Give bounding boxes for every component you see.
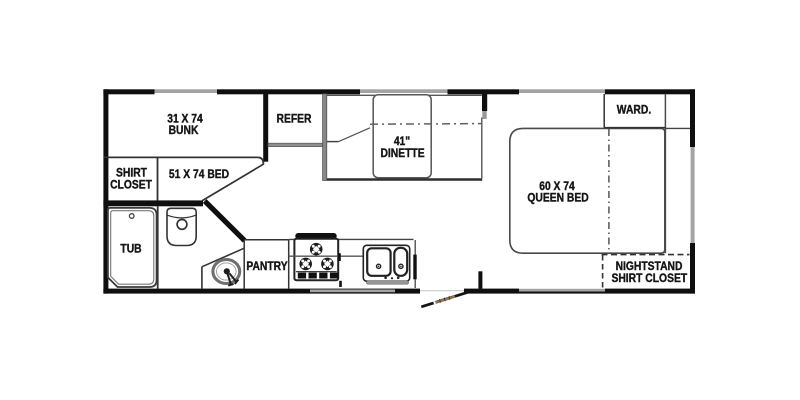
svg-text:51 X 74 BED: 51 X 74 BED (169, 169, 229, 182)
svg-text:DINETTE: DINETTE (380, 147, 425, 160)
svg-text:WARD.: WARD. (617, 104, 651, 117)
svg-text:CLOSET: CLOSET (110, 179, 152, 192)
svg-text:41": 41" (394, 135, 410, 148)
svg-text:QUEEN BED: QUEEN BED (527, 192, 588, 205)
svg-text:PANTRY: PANTRY (246, 260, 288, 273)
svg-text:SHIRT CLOSET: SHIRT CLOSET (611, 272, 687, 285)
svg-text:REFER: REFER (277, 113, 312, 126)
svg-text:TUB: TUB (120, 243, 141, 256)
svg-text:BUNK: BUNK (169, 125, 199, 138)
